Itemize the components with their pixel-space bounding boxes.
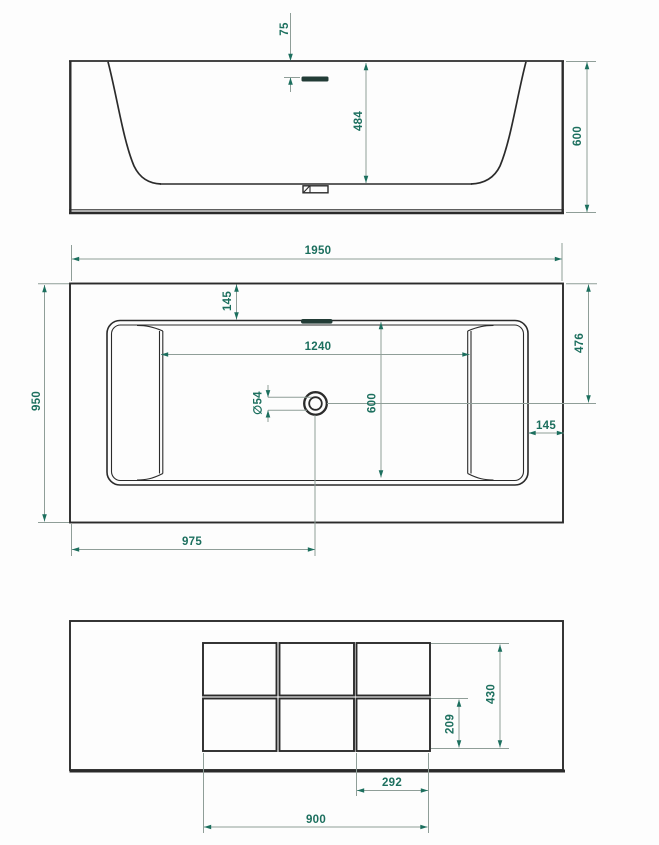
dim-label-rim-border-right: 145	[536, 420, 556, 432]
basin-interior-curve-left	[108, 62, 161, 184]
dim-label-overall-height: 600	[572, 126, 584, 146]
front-elevation-view: 75 484 600	[69, 13, 596, 214]
dim-basin-floor-length: 1240	[161, 341, 470, 357]
pad-6	[357, 699, 431, 752]
dim-label-basin-depth: 484	[353, 111, 365, 131]
pad-2	[280, 643, 355, 696]
dim-label-drain-offset-from-left: 975	[182, 536, 202, 548]
bottom-view: 430 209 292 900	[70, 621, 566, 833]
dim-rim-to-overflow: 75	[279, 13, 300, 92]
dim-label-overall-width: 950	[31, 391, 43, 411]
dim-label-basin-floor-length: 1240	[305, 341, 332, 353]
dim-label-rim-border-top: 145	[222, 291, 234, 311]
dim-overall-length: 1950	[72, 243, 563, 281]
dim-label-pad-field-depth: 430	[486, 684, 498, 704]
bathtub-drawing-svg: 75 484 600	[0, 0, 659, 845]
plan-view: 1950 145 1240 ∅54 600	[31, 243, 597, 556]
pad-3	[357, 643, 431, 696]
pad-4	[203, 699, 277, 752]
dim-drain-offset-from-top: 476	[566, 284, 597, 403]
dim-pad-depth: 209	[431, 699, 468, 748]
dim-label-drain-diameter: ∅54	[253, 391, 265, 415]
dim-label-rim-to-overflow: 75	[279, 22, 291, 36]
dim-pad-field-depth: 430	[431, 644, 509, 749]
backrest-panel-left	[137, 326, 163, 481]
dim-label-basin-width: 600	[367, 393, 379, 413]
dim-pad-width: 292	[357, 753, 429, 833]
overflow-slot-front	[302, 77, 329, 82]
backrest-panel-right	[468, 326, 494, 481]
drawing-sheet: 75 484 600	[0, 0, 659, 845]
drain-fitting-front	[303, 186, 328, 193]
overflow-slot-plan	[301, 319, 333, 324]
basin-interior-curve-right	[471, 62, 526, 184]
dim-label-drain-offset-from-top: 476	[574, 333, 586, 353]
dim-overall-height: 600	[566, 62, 596, 213]
dim-basin-width: 600	[367, 322, 384, 478]
dim-overall-width: 950	[31, 284, 69, 523]
dim-label-overall-length: 1950	[305, 245, 332, 257]
dim-pad-field-length: 900	[204, 753, 428, 833]
dim-drain-offset-from-left: 975	[72, 524, 316, 556]
pad-1	[203, 643, 277, 696]
drain-plan	[304, 392, 327, 415]
dim-label-pad-depth: 209	[445, 714, 457, 734]
pad-5	[280, 699, 355, 752]
dim-basin-depth: 484	[353, 63, 368, 183]
dim-rim-border-top: 145	[222, 285, 239, 320]
dim-rim-border-right: 145	[529, 420, 565, 435]
dim-label-pad-field-length: 900	[306, 814, 326, 826]
dim-label-pad-width: 292	[382, 777, 402, 789]
support-pads	[203, 643, 430, 751]
